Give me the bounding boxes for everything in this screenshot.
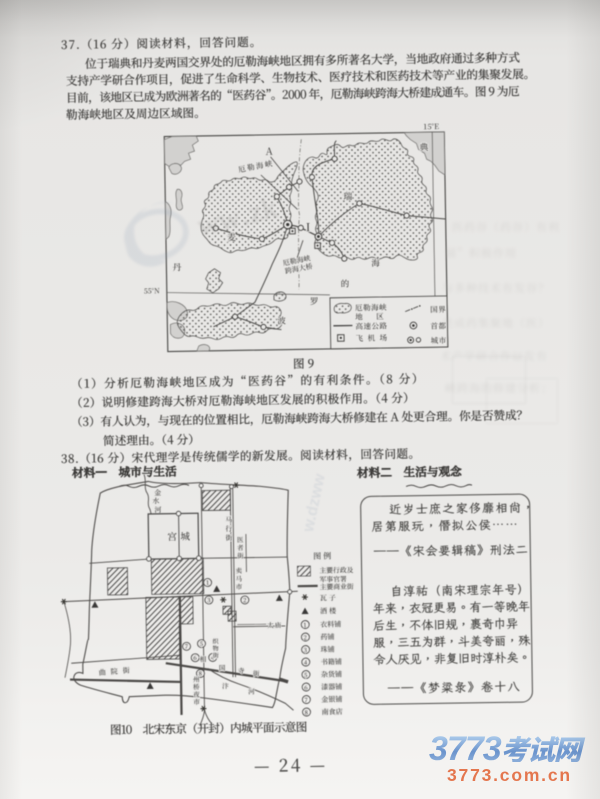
svg-text:典: 典 (419, 140, 428, 153)
svg-text:4: 4 (304, 658, 308, 667)
svg-text:汴: 汴 (222, 681, 229, 690)
svg-text:南食店: 南食店 (321, 707, 342, 717)
svg-text:15°E: 15°E (423, 121, 439, 132)
svg-text:漆器铺: 漆器铺 (321, 682, 342, 692)
svg-text:市: 市 (236, 582, 243, 591)
svg-text:杂货铺: 杂货铺 (321, 670, 342, 680)
svg-text:城市: 城市 (431, 334, 447, 345)
svg-text:5: 5 (304, 670, 308, 679)
svg-text:飞机场: 飞机场 (356, 332, 392, 344)
svg-text:ww.zk: ww.zk (192, 183, 281, 244)
svg-text:瓦子: 瓦子 (320, 593, 338, 603)
svg-text:3: 3 (304, 645, 308, 654)
svg-text:波: 波 (277, 314, 286, 326)
svg-text:相: 相 (200, 655, 207, 664)
svg-text:寺: 寺 (238, 666, 245, 675)
svg-text:海: 海 (371, 257, 380, 269)
svg-text:书籍铺: 书籍铺 (321, 657, 342, 667)
svg-text:曲院街: 曲院街 (98, 665, 135, 678)
svg-text:7: 7 (304, 695, 308, 704)
svg-text:酒楼: 酒楼 (320, 606, 338, 616)
svg-text:图例: 图例 (313, 551, 333, 562)
svg-text:瑞: 瑞 (343, 189, 352, 202)
svg-text:高速公路: 高速公路 (355, 320, 387, 332)
svg-text:衣料铺: 衣料铺 (320, 620, 341, 630)
svg-text:金银铺: 金银铺 (321, 695, 342, 705)
svg-text:药铺: 药铺 (320, 632, 334, 642)
svg-text:宫城: 宫城 (167, 529, 193, 543)
svg-text:太庙: 太庙 (267, 620, 282, 629)
svg-text:街: 街 (213, 650, 219, 659)
svg-text:1: 1 (206, 578, 209, 587)
svg-text:的: 的 (341, 277, 350, 289)
svg-text:珠铺: 珠铺 (321, 645, 335, 655)
svg-text:1: 1 (303, 620, 306, 629)
svg-text:2: 2 (303, 633, 307, 642)
svg-text:6: 6 (304, 683, 308, 692)
svg-text:街: 街 (253, 669, 260, 678)
svg-text:河: 河 (248, 687, 255, 696)
svg-text:街: 街 (225, 533, 232, 543)
svg-text:8: 8 (304, 708, 308, 717)
svg-text:主要商业街: 主要商业街 (320, 581, 354, 592)
svg-text:市: 市 (193, 697, 200, 706)
svg-text:街: 街 (237, 551, 244, 560)
svg-text:罗: 罗 (310, 295, 319, 307)
svg-text:国界: 国界 (430, 303, 446, 314)
svg-text:国: 国 (219, 663, 226, 672)
